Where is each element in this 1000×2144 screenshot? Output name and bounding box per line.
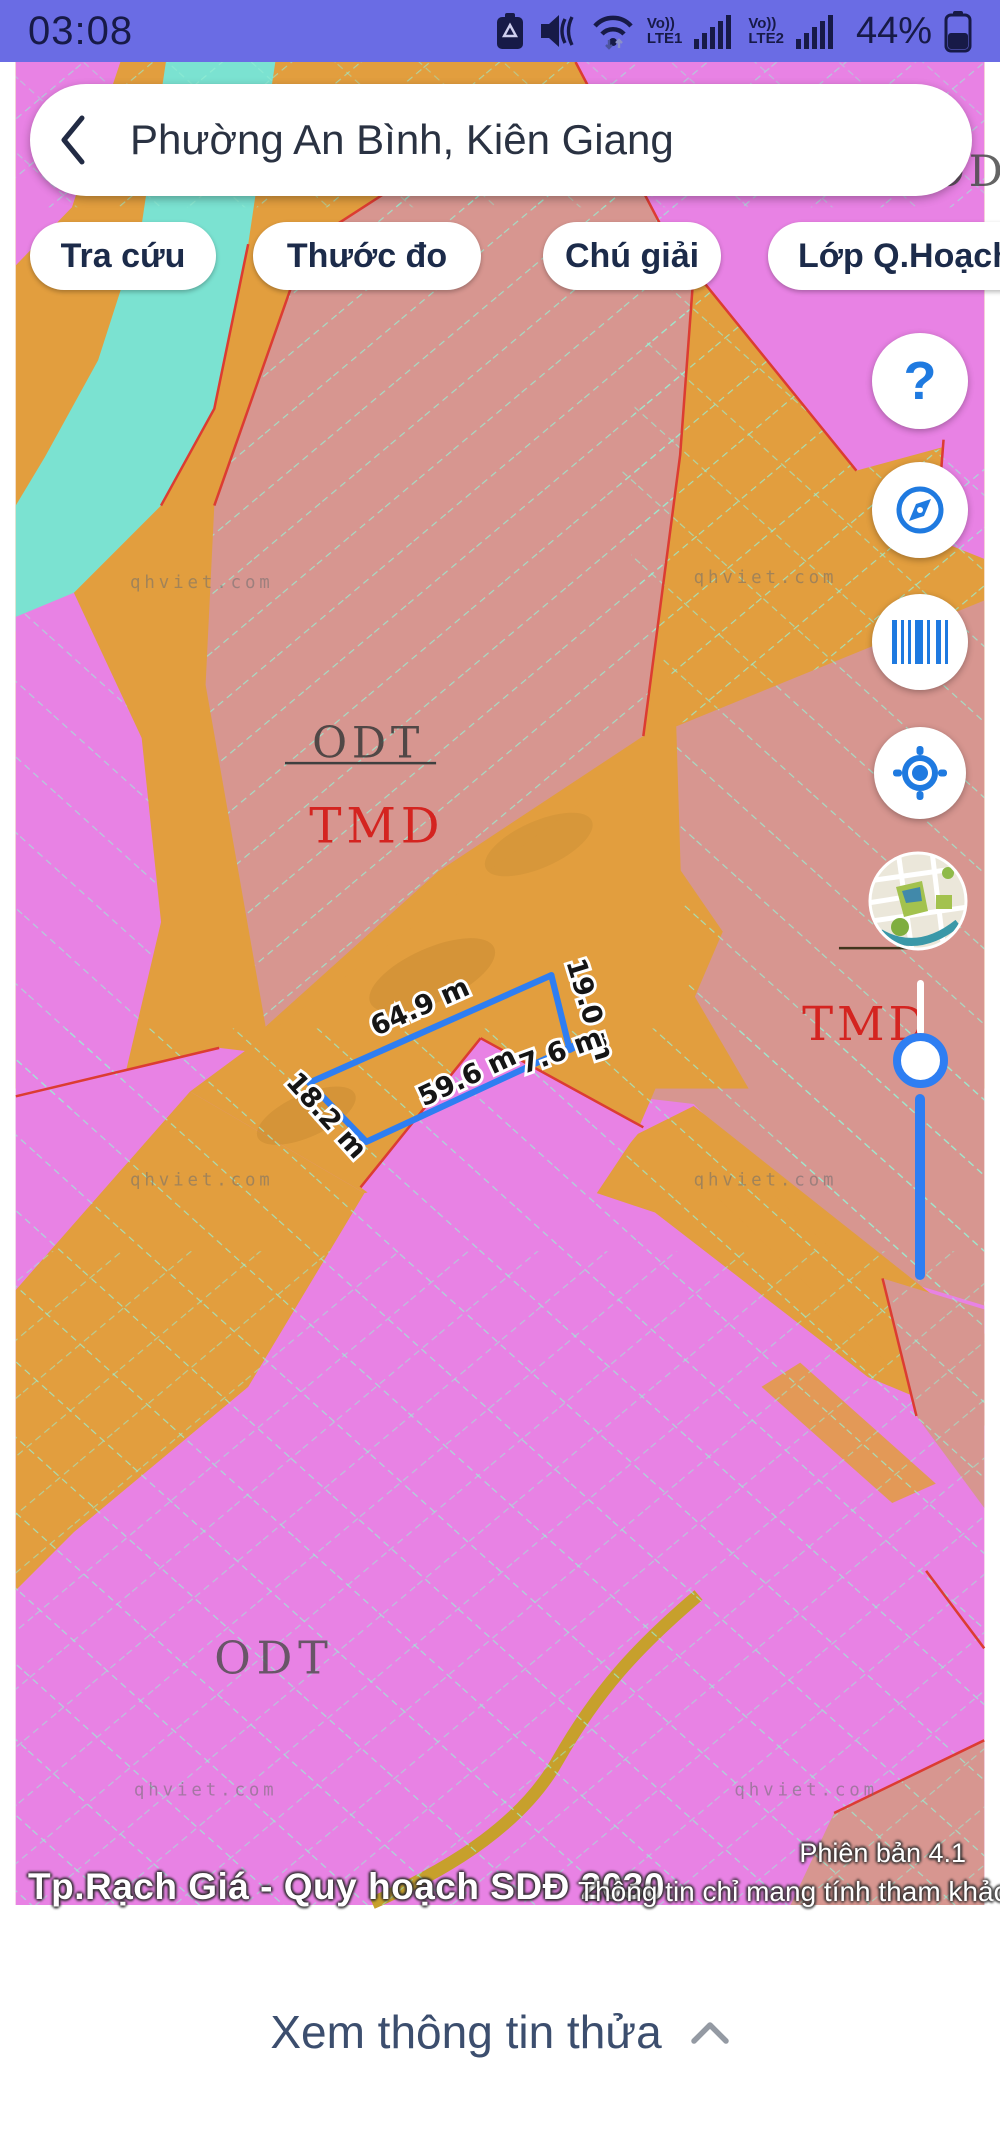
minimap-icon (868, 851, 968, 951)
version-label: Phiên bản 4.1 (799, 1838, 966, 1869)
chip-planning-layers[interactable]: Lớp Q.Hoạch (768, 222, 1000, 290)
svg-text:qhviet.com: qhviet.com (134, 1781, 278, 1801)
signal-bars-icon (796, 11, 838, 51)
map-title: Tp.Rạch Giá - Quy hoạch SDĐ 2030 (28, 1866, 665, 1908)
my-location-button[interactable] (874, 727, 966, 819)
chip-lookup[interactable]: Tra cứu (30, 222, 216, 290)
parcel-info-sheet[interactable]: Xem thông tin thửa (0, 1965, 1000, 2144)
slider-handle[interactable] (893, 1033, 948, 1088)
minimap-button[interactable] (868, 851, 968, 956)
chip-measure[interactable]: Thước đo (253, 222, 481, 290)
chevron-up-icon[interactable] (690, 2019, 730, 2045)
parcel-info-label[interactable]: Xem thông tin thửa (270, 2005, 661, 2059)
svg-text:qhviet.com: qhviet.com (130, 573, 274, 593)
compass-button[interactable] (872, 462, 968, 558)
battery-icon (944, 9, 972, 53)
search-bar[interactable]: Phường An Bình, Kiên Giang (30, 84, 972, 196)
volte2-label: Vo))LTE2 (748, 16, 784, 46)
volte1-label: Vo))LTE1 (647, 16, 683, 46)
battery-percent: 44% (856, 10, 932, 53)
help-icon: ? (904, 350, 937, 412)
clock: 03:08 (28, 9, 133, 54)
zone-label-tmd-center: TMD (309, 799, 444, 855)
zone-label-odt-center: ODT (312, 718, 424, 768)
help-button[interactable]: ? (872, 333, 968, 429)
disclaimer-label: Thông tin chỉ mang tính tham khảo (578, 1876, 1000, 1908)
compass-icon (890, 480, 950, 540)
barcode-icon (890, 616, 950, 668)
back-button[interactable] (30, 84, 116, 196)
slider-track-upper[interactable] (917, 980, 924, 1035)
wifi-icon (591, 10, 635, 52)
map-canvas[interactable]: qhviet.com qhviet.com qhviet.com qhviet.… (0, 62, 1000, 1965)
search-input[interactable]: Phường An Bình, Kiên Giang (130, 116, 674, 164)
barcode-button[interactable] (872, 594, 968, 690)
svg-text:qhviet.com: qhviet.com (694, 1170, 838, 1190)
svg-text:qhviet.com: qhviet.com (734, 1781, 878, 1801)
zone-label-odt-bottom: ODT (214, 1632, 333, 1684)
svg-text:qhviet.com: qhviet.com (694, 568, 838, 588)
chip-legend[interactable]: Chú giải (543, 222, 721, 290)
chevron-left-icon (56, 112, 90, 168)
my-location-icon (891, 744, 949, 802)
slider-track-lower[interactable] (915, 1094, 925, 1280)
signal-bars-icon (694, 11, 736, 51)
mute-icon (539, 11, 579, 51)
battery-saver-icon (493, 11, 527, 51)
svg-text:qhviet.com: qhviet.com (130, 1170, 274, 1190)
status-bar: 03:08 Vo))LTE1 (0, 0, 1000, 62)
app-screen: qhviet.com qhviet.com qhviet.com qhviet.… (0, 0, 1000, 2144)
